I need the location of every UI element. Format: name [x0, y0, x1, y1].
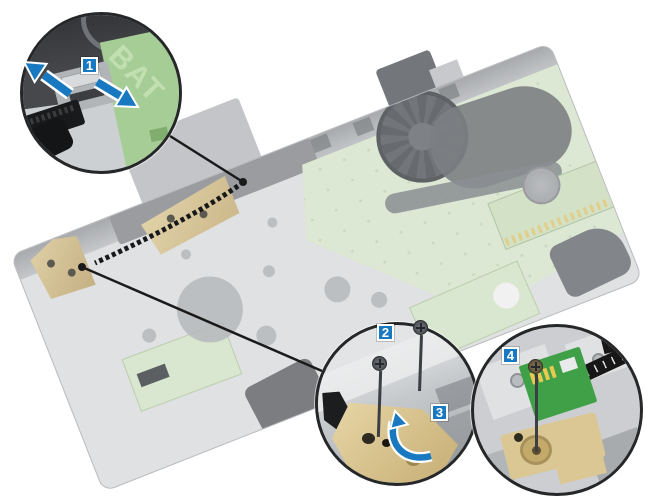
io-board [122, 322, 243, 412]
service-manual-figure: BAT [0, 0, 648, 500]
screw-shaft [535, 374, 538, 452]
callout-1: 1 [81, 57, 98, 74]
hinge-screw-hole [166, 213, 176, 223]
pcb-component [149, 127, 169, 142]
heat-pipe [383, 160, 563, 215]
cooling-fan [363, 77, 482, 196]
speaker-right [546, 219, 635, 301]
callout-2: 2 [377, 324, 394, 341]
chassis-hole [253, 323, 279, 349]
chassis-hole [167, 267, 253, 353]
chassis-hole [261, 263, 277, 279]
hinge-screw-hole [67, 267, 77, 277]
inset-power-button-board [471, 324, 643, 496]
hinge-screw-icon [372, 356, 387, 371]
display-hinge-left [26, 231, 96, 304]
callout-4: 4 [502, 347, 519, 364]
bracket-screw-hole [382, 439, 391, 447]
chassis-hole [321, 273, 355, 307]
chassis-hole [369, 289, 390, 310]
inset-battery-cable: BAT [20, 12, 182, 174]
chassis-hole [140, 327, 158, 345]
heatsink [420, 74, 582, 201]
chassis-hole [180, 248, 193, 261]
hinge-screw-icon [413, 320, 428, 335]
inset-hinge-screws [315, 322, 479, 486]
hinge-screw-hole [46, 258, 56, 268]
hinge-screw-hole [198, 209, 208, 219]
motherboard [280, 63, 634, 364]
chassis-hole [266, 216, 279, 229]
coin-cell-battery [517, 161, 566, 210]
flex-hole [514, 433, 523, 442]
bracket-hole [362, 433, 375, 444]
memory-module [487, 160, 615, 250]
bracket-hole [390, 419, 400, 428]
board-screw-icon [528, 359, 543, 374]
board-connector [559, 357, 578, 373]
bracket-ring [406, 453, 421, 466]
callout-3: 3 [431, 404, 448, 421]
